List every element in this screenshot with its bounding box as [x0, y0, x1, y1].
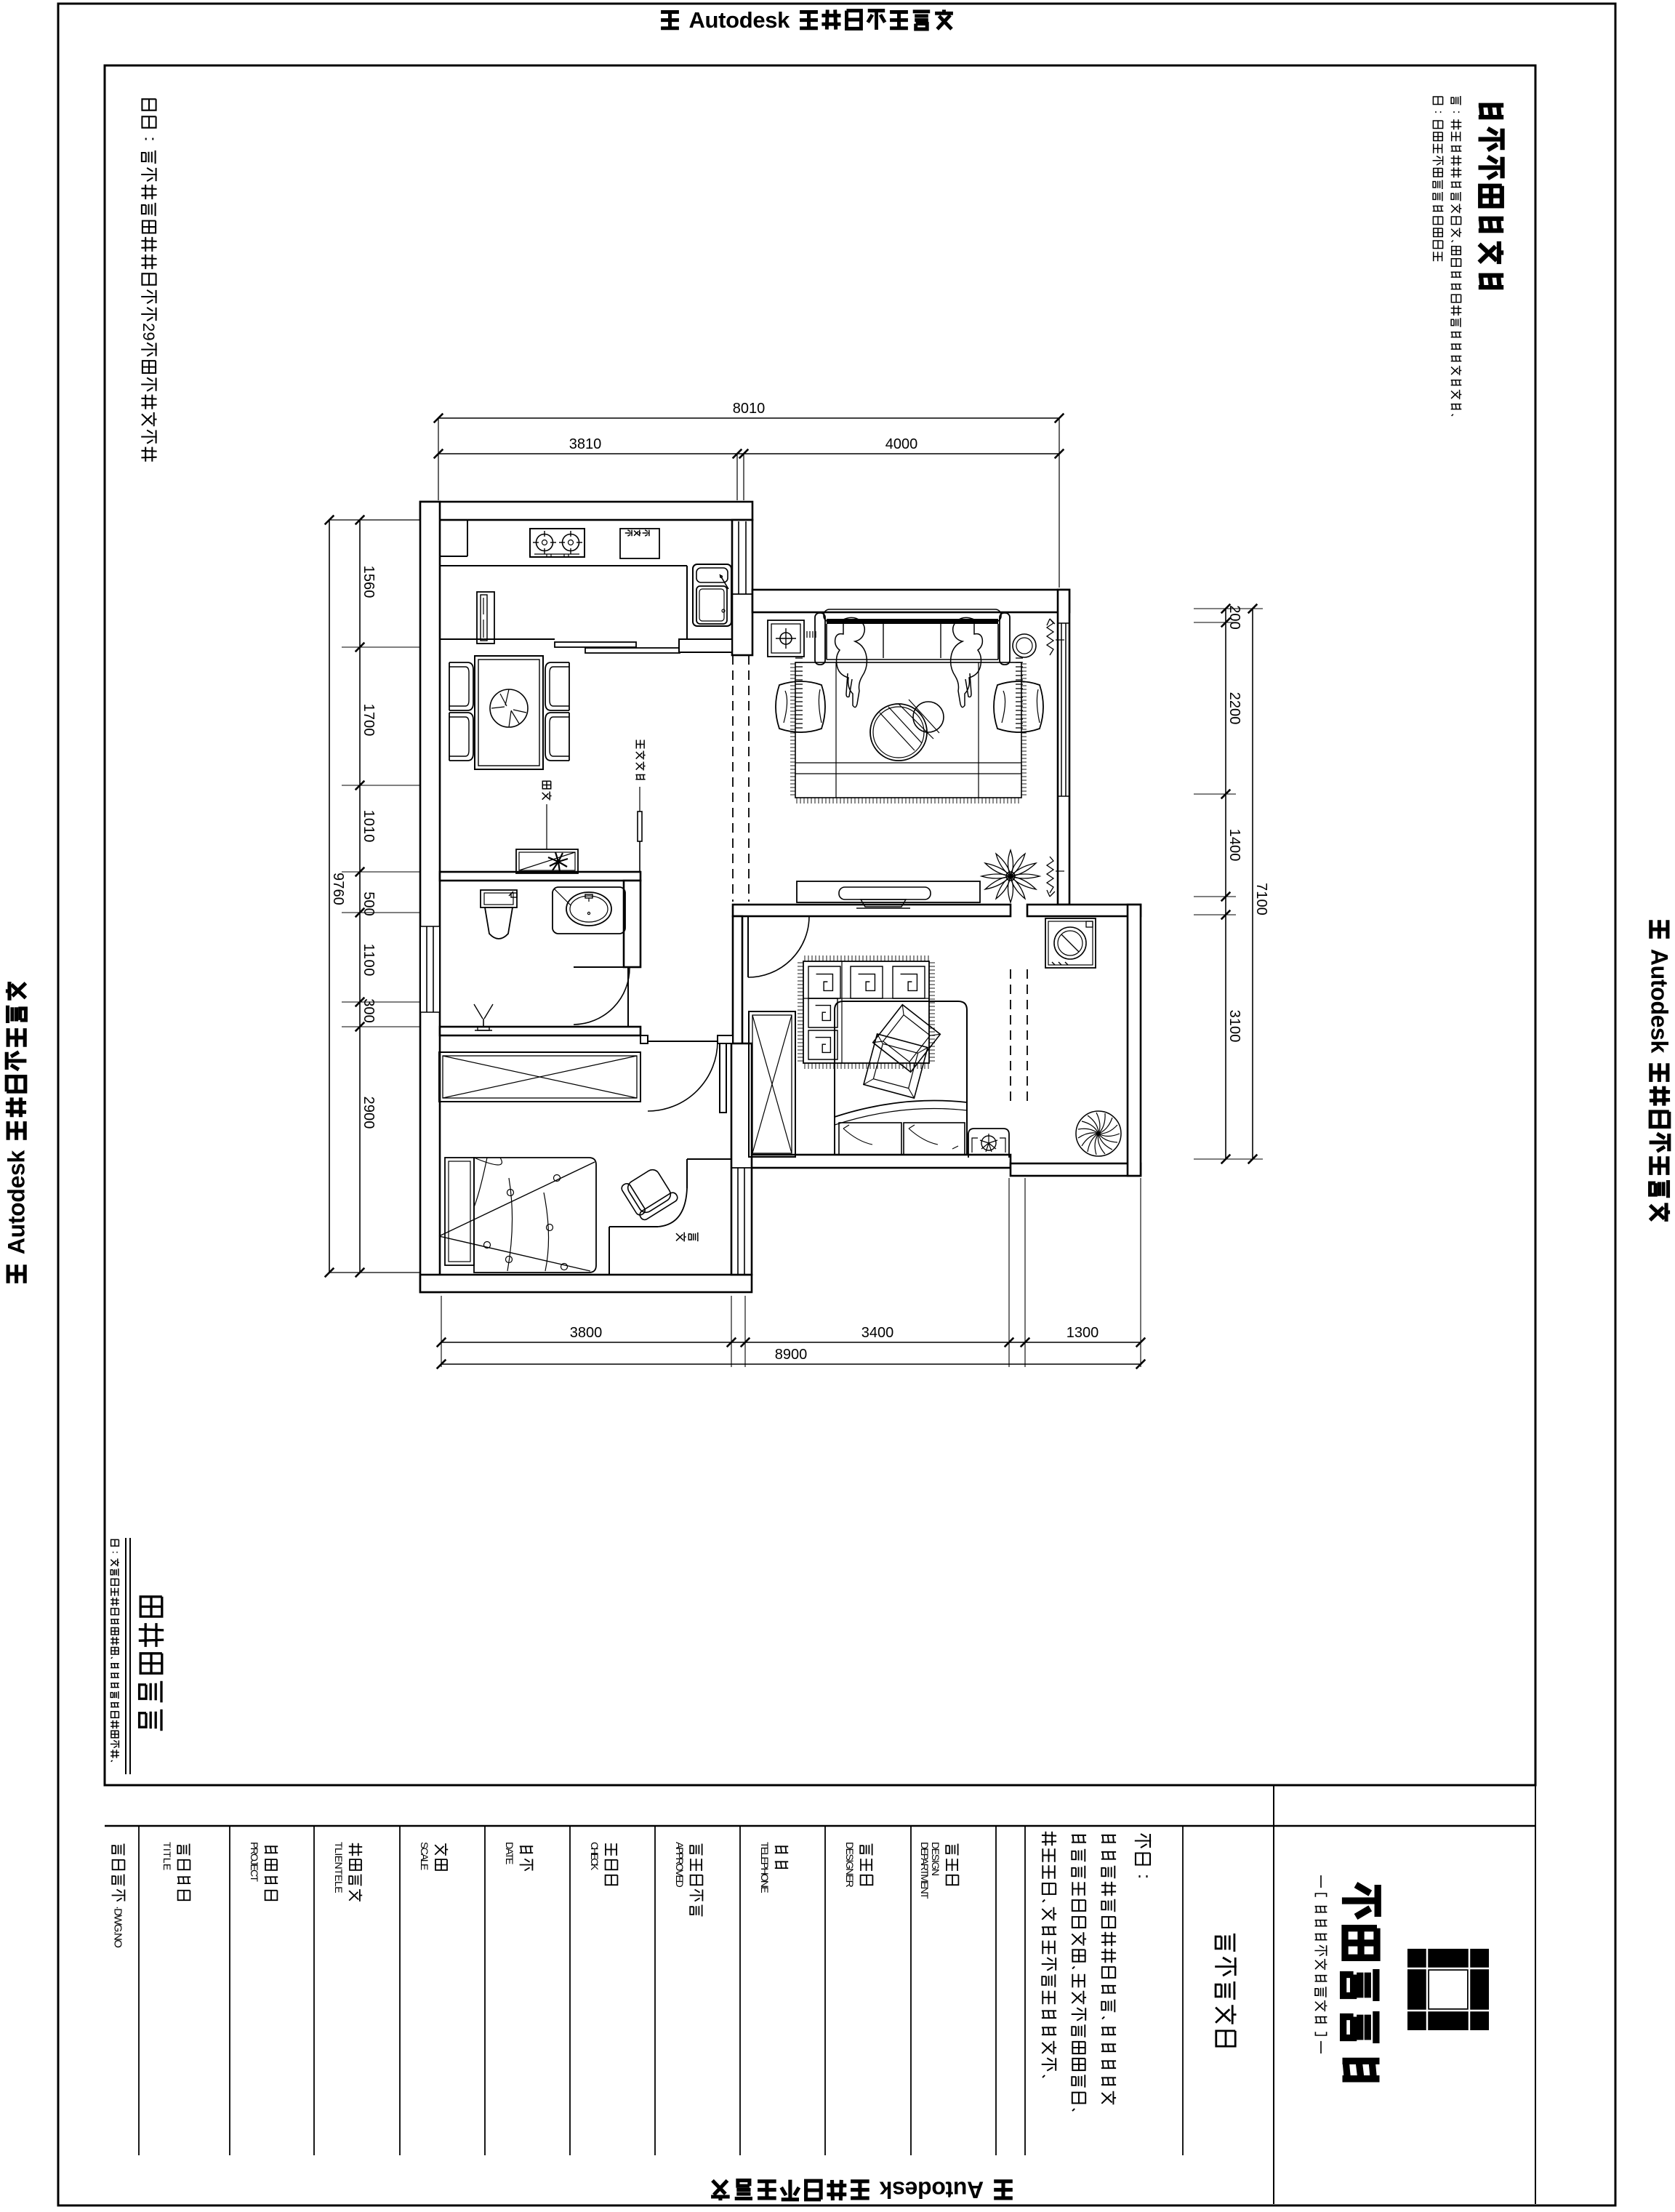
svg-text:1700: 1700: [361, 704, 377, 737]
svg-text:TITLE: TITLE: [161, 1842, 173, 1870]
svg-text:300: 300: [361, 998, 377, 1023]
svg-text:DEPARTMENT: DEPARTMENT: [919, 1842, 931, 1899]
svg-text:1560: 1560: [361, 566, 377, 598]
svg-text:29: 29: [140, 323, 158, 341]
svg-text:1010: 1010: [361, 810, 377, 843]
svg-text:DESIGNER: DESIGNER: [844, 1842, 856, 1888]
svg-text:3100: 3100: [1226, 1010, 1242, 1043]
svg-text:4000: 4000: [885, 436, 918, 452]
svg-text:DESIGN: DESIGN: [930, 1842, 941, 1876]
svg-text:TLIENTELE: TLIENTELE: [333, 1842, 345, 1894]
svg-text:·DWG.NO: ·DWG.NO: [112, 1906, 124, 1948]
svg-text:1100: 1100: [361, 944, 377, 977]
svg-text:500: 500: [361, 891, 377, 916]
svg-text:Autodesk: Autodesk: [1647, 949, 1673, 1054]
svg-text:Autodesk: Autodesk: [4, 1150, 30, 1254]
svg-text:APPROVED: APPROVED: [674, 1842, 686, 1888]
svg-text:3800: 3800: [570, 1325, 603, 1341]
svg-text:1400: 1400: [1226, 829, 1242, 862]
svg-text:3400: 3400: [861, 1325, 894, 1341]
svg-text:Autodesk: Autodesk: [879, 2177, 984, 2203]
svg-text:CHECK: CHECK: [589, 1842, 600, 1871]
svg-text:9760: 9760: [330, 873, 346, 905]
svg-text:8900: 8900: [775, 1347, 808, 1363]
svg-text:TELEPHONE: TELEPHONE: [759, 1842, 771, 1894]
svg-text:8010: 8010: [733, 401, 766, 417]
svg-text:1300: 1300: [1067, 1325, 1099, 1341]
svg-text:7100: 7100: [1253, 883, 1269, 915]
svg-text:DATE: DATE: [504, 1842, 515, 1864]
svg-text:PROJECT: PROJECT: [249, 1842, 260, 1882]
svg-text:2200: 2200: [1226, 692, 1242, 725]
svg-text:Autodesk: Autodesk: [689, 7, 791, 33]
svg-text:2900: 2900: [361, 1097, 377, 1129]
svg-text:SCALE: SCALE: [419, 1842, 430, 1870]
svg-text:3810: 3810: [569, 436, 602, 452]
